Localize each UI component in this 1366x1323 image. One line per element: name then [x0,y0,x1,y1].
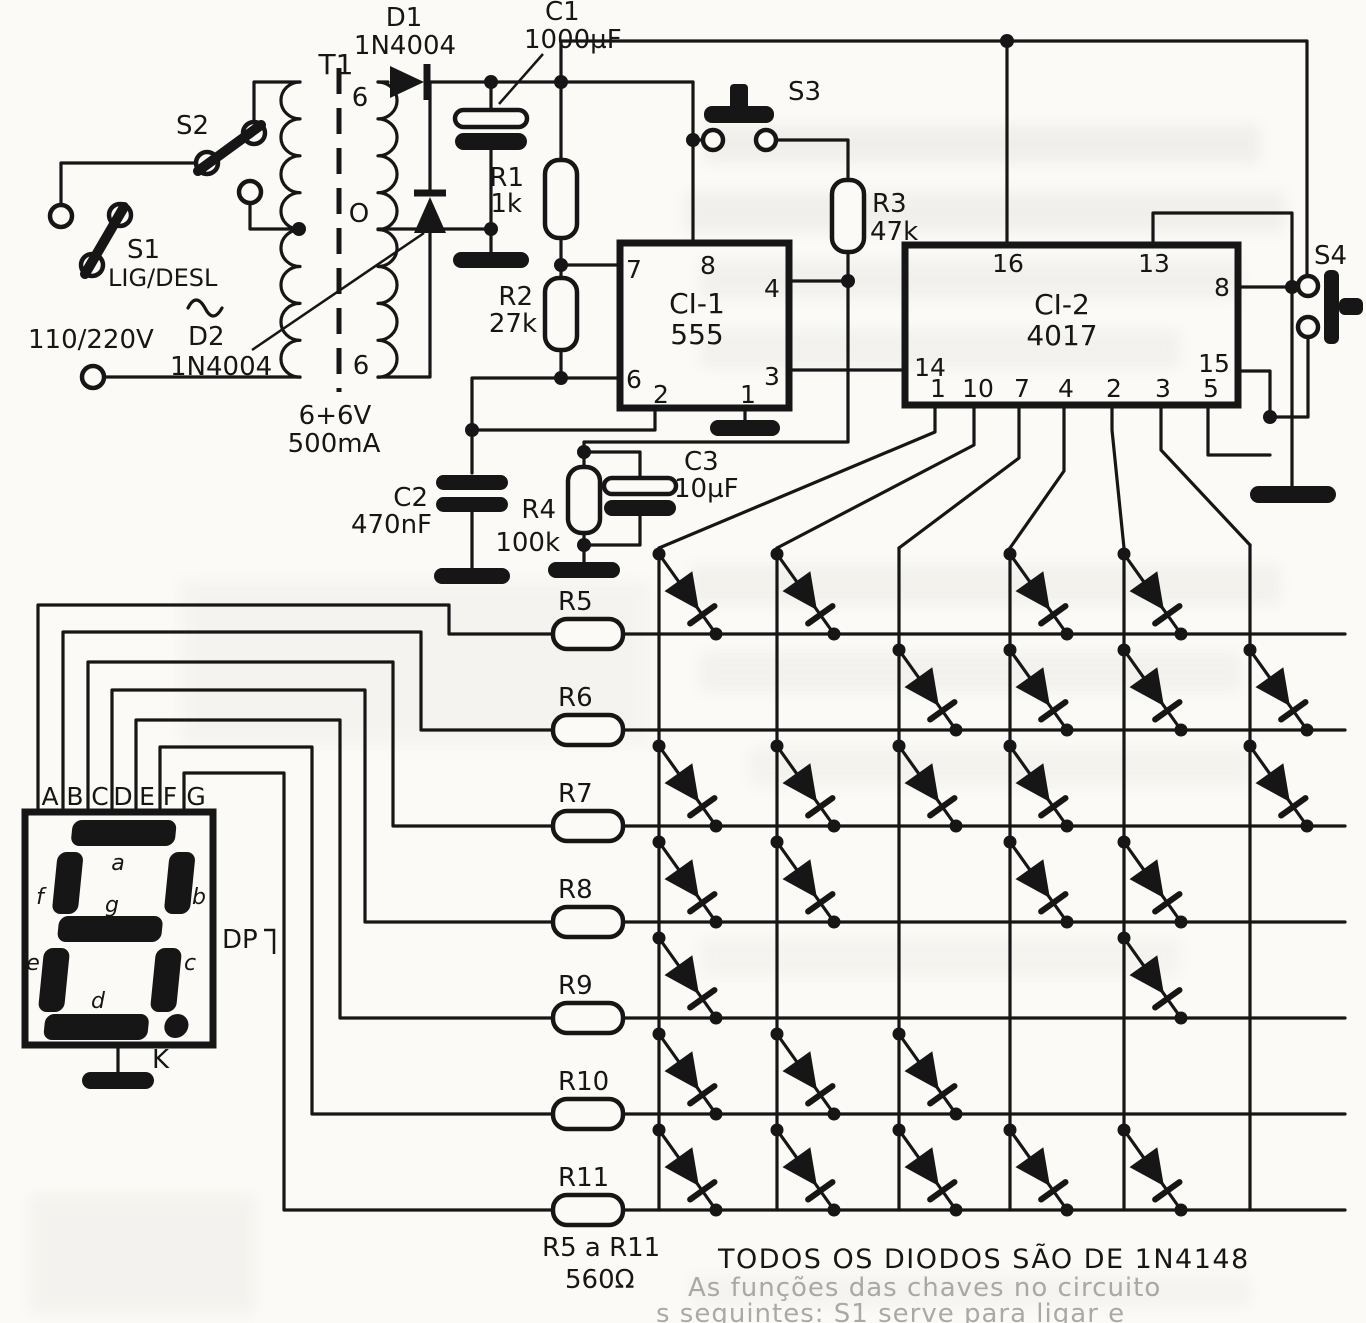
diode-cathode-bar [1155,990,1179,1007]
junction-dot [710,820,723,833]
r2-value-label: 27k [489,309,537,339]
display-pin-letter: A [41,782,58,811]
oscillator-555-section: R1 1k R2 27k CI-1 555 7 8 4 3 6 2 1 S3 [351,41,918,584]
diode-cathode-bar [808,1086,832,1103]
diode-cathode-bar [808,606,832,623]
junction-dot [710,916,723,929]
junction-dot [893,644,906,657]
c3-value-label: 10µF [674,474,739,504]
d2-diode: D2 1N4004 [170,82,446,382]
diode-triangle [905,1051,939,1090]
row-resistor-label: R10 [558,1067,609,1097]
diode-cathode-bar [1155,1182,1179,1199]
tap-bottom-label: 6 [353,351,370,381]
diode-cathode-bar [690,894,714,911]
segment-c-shape [150,948,182,1012]
s4-label: S4 [1314,241,1347,271]
diode-triangle [665,859,699,898]
ic2-bottom-pin-label: 3 [1155,374,1171,403]
diode-cathode-bar [1041,606,1065,623]
row-resistor [553,1195,623,1225]
diode-triangle [665,1051,699,1090]
junction-dot [653,548,666,561]
ic1-pin1: 1 [740,380,756,409]
segment-b-shape [164,852,196,914]
diode-cathode-bar [1281,702,1305,719]
ic2-pin16: 16 [992,249,1024,278]
seg-e-label: e [26,951,40,976]
diode-cathode-bar [808,1182,832,1199]
s1-mode-label: LIG/DESL [108,264,218,292]
seg-g-label: g [105,893,119,918]
matrix-diode [1004,1124,1074,1217]
junction-dot [1061,724,1074,737]
c2-label: C2 [393,483,428,513]
matrix-diode [771,1028,841,1121]
diode-cathode-bar [930,1086,954,1103]
junction-dot [710,1108,723,1121]
matrix-diode [653,1028,723,1121]
junction-dot [1004,548,1017,561]
ic1-pin6: 6 [626,365,642,394]
ac-voltage-label: 110/220V [28,325,154,355]
s1-switch: S1 LIG/DESL [81,204,218,292]
junction-dot [1244,644,1257,657]
ic1-pin2: 2 [653,380,669,409]
junction-dot [1004,836,1017,849]
c2-capacitor: C2 470nF [351,475,510,584]
junction-dot [950,1204,963,1217]
ic2-pin8: 8 [1214,273,1230,302]
segment-e-shape [38,948,70,1012]
c1-leader-line [499,54,543,104]
junction-dot [1175,916,1188,929]
pin5-loop-wire [1208,405,1270,455]
junction-dot [893,1028,906,1041]
junction-dot [771,740,784,753]
ic2-bottom-pin-label: 1 [930,374,946,403]
r4-resistor: R4 100k [495,445,620,578]
diode-cathode-bar [1041,702,1065,719]
diode-triangle [905,1147,939,1186]
junction-dot [1118,1124,1131,1137]
junction-dot [828,1204,841,1217]
matrix-diode [1118,1124,1188,1217]
display-pin-letter: C [91,782,108,811]
diode-triangle [665,1147,699,1186]
t1-label: T1 [318,48,354,81]
ground-bar [1250,486,1336,503]
rating-voltage: 6+6V [299,401,372,431]
junction-dot [653,1124,666,1137]
diode-triangle [783,1051,817,1090]
seg-f-label: f [36,885,47,910]
junction-dot [828,628,841,641]
dp-label: DP [222,925,258,955]
segment-bus-wire [160,747,553,1114]
r4-value-label: 100k [495,528,560,558]
row-resistor-label: R6 [558,683,593,713]
diode-cathode-bar [1155,606,1179,623]
segment-a-shape [70,820,177,846]
row-resistor-label: R11 [558,1163,609,1193]
seg-b-label: b [192,885,206,910]
diode-cathode-bar [690,990,714,1007]
ic2-bottom-pin-label: 2 [1106,374,1122,403]
junction-dot [1061,916,1074,929]
junction-dot [950,724,963,737]
r4-label: R4 [521,495,556,525]
diode-cathode-bar [690,606,714,623]
row-resistor-label: R9 [558,971,593,1001]
r2-label: R2 [498,282,533,312]
matrix-diode [653,836,723,929]
ground-bar [82,1072,154,1089]
reset-to-s4-wire [1270,337,1308,417]
ic1-pin4: 4 [764,274,780,303]
d2-label: D2 [188,322,225,352]
s1-label: S1 [127,235,160,265]
junction-dot [1004,1124,1017,1137]
junction-dot [950,820,963,833]
segment-f-shape [52,852,84,914]
diode-cathode-bar [930,798,954,815]
row-resistor-label: R5 [558,587,593,617]
junction-dot [950,1108,963,1121]
ic2-pin13: 13 [1138,249,1170,278]
junction-dot [1118,644,1131,657]
junction-dot [1004,644,1017,657]
diode-triangle [1016,859,1050,898]
dp-hook-mark [264,930,274,954]
junction-dot [1301,724,1314,737]
diode-triangle [1130,1147,1164,1186]
seg-c-label: c [184,951,196,976]
matrix-diode [771,836,841,929]
row-resistor [553,1099,623,1129]
junction-dot [1175,724,1188,737]
diode-cathode-bar [808,894,832,911]
ic2-bottom-pin-label: 10 [962,374,994,403]
diode-cathode-bar [690,1086,714,1103]
diode-cathode-bar [1281,798,1305,815]
ic2-name: CI-2 [1034,288,1090,321]
ground-bar [453,252,529,268]
diode-cathode-bar [1041,894,1065,911]
diode-cathode-bar [690,1182,714,1199]
c3-label: C3 [684,447,719,477]
ac-terminal-top [50,205,72,227]
s3-label: S3 [788,77,821,107]
diode-triangle [1130,859,1164,898]
ground-bar [548,562,620,578]
diode-triangle [1256,763,1290,802]
ic1-name: CI-1 [669,287,725,320]
ac-sine-icon [188,300,222,316]
diode-note: TODOS OS DIODOS SÃO DE 1N4148 [717,1243,1250,1275]
r2-resistor: R2 27k [489,278,577,385]
rating-current: 500mA [288,429,381,459]
diode-triangle [783,859,817,898]
display-pin-letters: ABCDEFG [41,782,205,811]
junction-dot [710,628,723,641]
junction-dot [893,740,906,753]
junction-dot [1118,548,1131,561]
junction-dot [828,1108,841,1121]
ac-top-wire [61,163,196,205]
ic2-bottom-pin-label: 7 [1014,374,1030,403]
diode-cathode-bar [690,798,714,815]
cathode-label: K [152,1045,170,1075]
junction-dot [771,836,784,849]
matrix-diode [1004,836,1074,929]
ground-bar [710,420,780,436]
r1-value-label: 1k [490,189,522,219]
resistor-value-note: 560Ω [565,1265,635,1295]
junction-dot [828,820,841,833]
junction-dot [710,1204,723,1217]
segment-bus-wire [136,720,553,1018]
diode-cathode-bar [1041,798,1065,815]
ic2-bottom-pin-label: 4 [1058,374,1074,403]
junction-dot [1175,1012,1188,1025]
seg-d-label: d [91,989,106,1014]
junction-dot [1061,628,1074,641]
junction-dot [893,1124,906,1137]
row-resistor [553,619,623,649]
tap-top-label: 6 [352,83,369,113]
junction-dot [771,548,784,561]
ic2-bottom-pin-label: 5 [1203,374,1219,403]
diode-cathode-bar [1155,702,1179,719]
s2-switch: S2 [176,111,265,203]
junction-dot [653,836,666,849]
junction-dot [1301,820,1314,833]
segment-bus-wire [184,773,553,1210]
display-pin-letter: E [139,782,155,811]
junction-dot [828,916,841,929]
row-resistor [553,907,623,937]
junction-dot [653,1028,666,1041]
pin6-wire [472,378,620,473]
junction-dot [653,932,666,945]
power-supply-section: 110/220V S1 LIG/DESL S2 T1 6 O [28,0,693,459]
diode-triangle [783,1147,817,1186]
circuit-schematic: 110/220V S1 LIG/DESL S2 T1 6 O [0,0,1366,1323]
diode-triangle [665,955,699,994]
display-pin-letter: G [186,782,205,811]
matrix-diode [653,740,723,833]
diode-cathode-bar [1155,894,1179,911]
matrix-diode [771,1124,841,1217]
row-resistor [553,811,623,841]
matrix-diode [893,1124,963,1217]
display-pin-letter: D [113,782,132,811]
ic1-pin3: 3 [764,362,780,391]
ic2-bottom-pin-labels: 11074235 [930,374,1219,403]
bleedthrough-line2: s seguintes: S1 serve para ligar e [656,1299,1125,1323]
display-pin-letter: B [66,782,83,811]
diode-cathode-bar [930,702,954,719]
matrix-diode [653,1124,723,1217]
junction-dot [710,1012,723,1025]
c1-label: C1 [545,0,580,27]
segment-g-shape [57,916,164,942]
row-resistor-label: R7 [558,779,593,809]
d1-label: D1 [386,3,423,33]
c2-value-label: 470nF [351,510,432,540]
junction-dot [1061,1204,1074,1217]
ic2-part: 4017 [1026,319,1097,352]
ic1-part: 555 [670,318,723,351]
diode-cathode-bar [808,798,832,815]
junction-dot [771,1124,784,1137]
diode-cathode-bar [1041,1182,1065,1199]
junction-dot [1061,820,1074,833]
diode-triangle [665,763,699,802]
junction-dot [653,740,666,753]
d2-part-label: 1N4004 [170,352,272,382]
segment-d-shape [43,1014,150,1040]
junction-dot [771,1028,784,1041]
r3-label: R3 [872,189,907,219]
junction-dot [1118,932,1131,945]
junction-dot [1244,740,1257,753]
tap-mid-label: O [349,199,369,229]
decimal-point-shape [163,1014,189,1038]
c3-capacitor: C3 10µF [584,447,739,545]
s2-label: S2 [176,111,209,141]
s2-tap220-wire [250,203,300,229]
ground-bar [434,568,510,584]
matrix-diode [893,1028,963,1121]
pin15-wire [1238,371,1270,417]
row-resistor [553,715,623,745]
ic1-pin7: 7 [626,255,642,284]
seg-a-label: a [111,851,124,876]
display-pin-letter: F [163,782,177,811]
d1-part-label: 1N4004 [354,31,456,61]
diode-cathode-bar [930,1182,954,1199]
row-resistor [553,1003,623,1033]
matrix-diode [1118,836,1188,929]
junction-dot [1118,836,1131,849]
matrix-diode [1244,644,1314,737]
seven-segment-display: ABCDEFG a f b g e c d DP K [25,782,274,1089]
ac-terminal-bottom [82,366,104,388]
scanned-schematic-page: 110/220V S1 LIG/DESL S2 T1 6 O [0,0,1366,1323]
resistor-range-note: R5 a R11 [542,1233,660,1263]
diode-triangle [1256,667,1290,706]
row-resistor-label: R8 [558,875,593,905]
junction-dot [1175,628,1188,641]
transformer-t1: T1 6 O 6 6+6V 500mA [281,48,397,459]
matrix-diode [1244,740,1314,833]
junction-dot [1004,740,1017,753]
ic1-pin8: 8 [700,251,716,280]
diode-triangle [1016,1147,1050,1186]
junction-dot [1175,1204,1188,1217]
